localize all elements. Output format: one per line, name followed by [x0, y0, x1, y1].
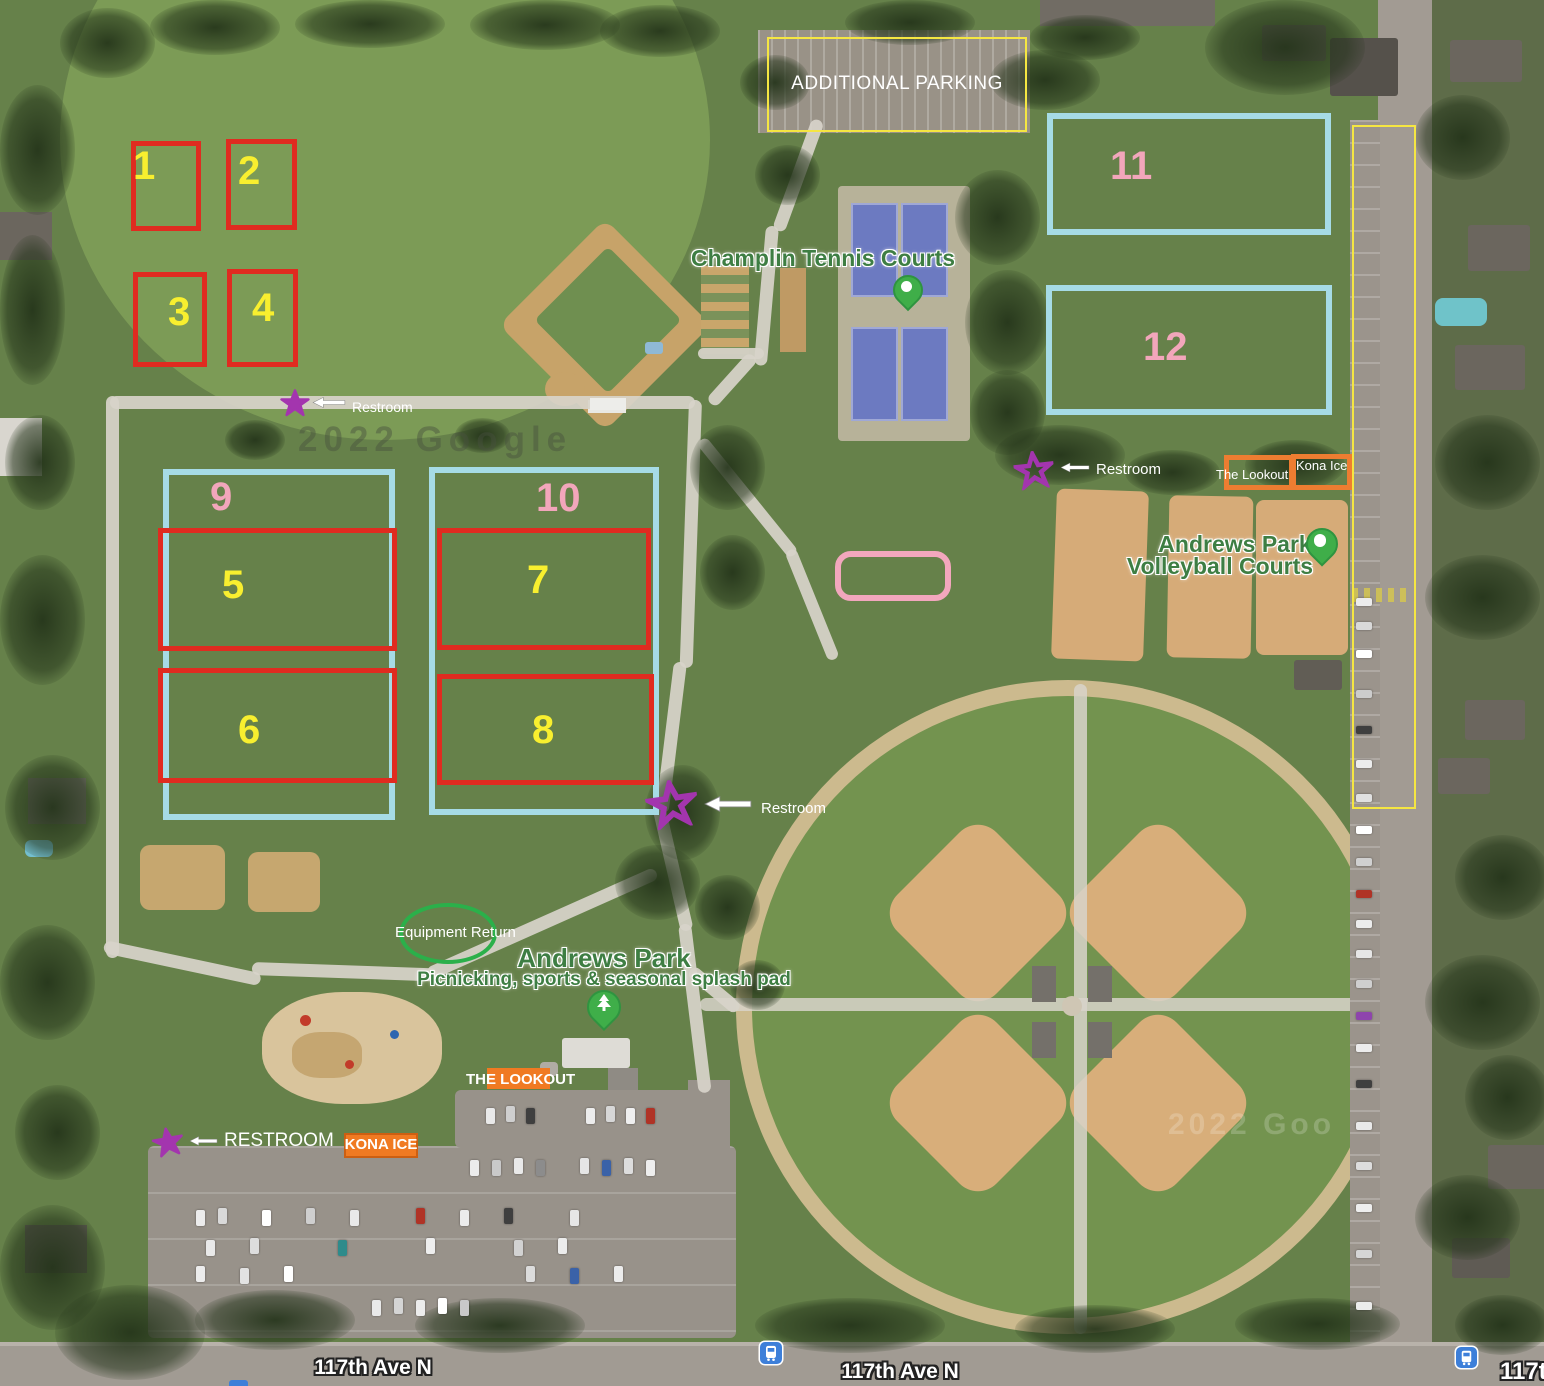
google-watermark: 2022 Goo: [1168, 1108, 1335, 1142]
parked-car: [416, 1300, 425, 1316]
parked-car: [1356, 1162, 1372, 1170]
parked-car: [1356, 1012, 1372, 1020]
parked-car: [196, 1210, 205, 1226]
tree: [695, 875, 760, 940]
restroom-label: RESTROOM: [224, 1131, 334, 1152]
parked-car: [240, 1268, 249, 1284]
parked-car: [586, 1108, 595, 1124]
parked-car: [470, 1160, 479, 1176]
street-parking-box: [1352, 125, 1416, 809]
the-lookout-label: THE LOOKOUT: [466, 1072, 575, 1089]
tree: [60, 8, 155, 78]
tree: [600, 5, 720, 57]
tree: [470, 0, 620, 50]
parked-car: [284, 1266, 293, 1282]
field-box-12: [1046, 285, 1332, 415]
tree: [150, 0, 280, 55]
park-poi-subtitle[interactable]: Picnicking, sports & seasonal splash pad: [417, 969, 791, 991]
parked-car: [1356, 1080, 1372, 1088]
additional-parking-label: ADDITIONAL PARKING: [791, 74, 1003, 95]
parked-car: [438, 1298, 447, 1314]
street-label: 117th Ave N: [841, 1360, 959, 1384]
tree-pin-icon[interactable]: [587, 990, 621, 1024]
tree: [955, 170, 1040, 265]
parked-car: [602, 1160, 611, 1176]
parked-car: [1356, 890, 1372, 898]
parked-car: [626, 1108, 635, 1124]
parked-car: [426, 1238, 435, 1254]
left-arrow-icon: [312, 396, 346, 409]
tree: [1205, 0, 1365, 95]
restroom-label: Restroom: [1096, 462, 1161, 479]
parked-car: [416, 1208, 425, 1224]
parked-car: [614, 1266, 623, 1282]
field-number-9: 9: [210, 477, 232, 517]
restroom-star-icon: [643, 777, 701, 832]
tree: [690, 425, 765, 510]
field-number-10: 10: [536, 478, 581, 518]
parked-car: [606, 1106, 615, 1122]
parked-car: [1356, 920, 1372, 928]
tree: [0, 555, 85, 685]
left-arrow-icon: [189, 1135, 218, 1147]
field-box-2: [226, 139, 297, 230]
restroom-star-icon: [280, 388, 310, 418]
restroom-label: Restroom: [352, 400, 413, 415]
field-box-6: [158, 668, 397, 783]
parked-car: [646, 1160, 655, 1176]
bus-stop-icon[interactable]: [760, 1342, 782, 1364]
left-arrow-icon: [702, 795, 754, 813]
tree: [1415, 95, 1510, 180]
equipment-return-label: Equipment Return: [395, 925, 516, 942]
restroom-star-icon: [1012, 449, 1056, 491]
tree: [1235, 1298, 1400, 1350]
restroom-star-icon: [148, 1123, 187, 1160]
tree: [1455, 1295, 1544, 1355]
bus-glyph: [761, 1343, 781, 1363]
field-box-5: [158, 528, 397, 651]
parked-car: [218, 1208, 227, 1224]
parked-car: [492, 1160, 501, 1176]
pink-marker-box: [835, 551, 951, 601]
tree: [0, 925, 95, 1040]
kona-ice-label: Kona Ice: [1296, 459, 1347, 473]
tree: [965, 270, 1050, 375]
tree: [55, 1285, 205, 1380]
tree: [195, 1290, 355, 1350]
parked-car: [1356, 1122, 1372, 1130]
tree: [5, 755, 100, 860]
parked-car: [460, 1300, 469, 1316]
parked-car: [526, 1266, 535, 1282]
parked-car: [570, 1268, 579, 1284]
parked-car: [504, 1208, 513, 1224]
field-number-5: 5: [222, 565, 244, 605]
field-number-12: 12: [1143, 327, 1188, 367]
tree: [755, 145, 820, 205]
parked-car: [1356, 1250, 1372, 1258]
parked-car: [558, 1238, 567, 1254]
parked-car: [1356, 980, 1372, 988]
parked-car: [372, 1300, 381, 1316]
parked-car: [514, 1158, 523, 1174]
left-arrow-icon: [1060, 461, 1090, 474]
street-label: 117th Ave N: [314, 1356, 432, 1380]
field-number-8: 8: [532, 710, 554, 750]
tree: [755, 1298, 945, 1353]
street-label: 117th: [1500, 1358, 1544, 1386]
parked-car: [350, 1210, 359, 1226]
tree: [1425, 555, 1540, 640]
parked-car: [506, 1106, 515, 1122]
tree: [700, 535, 765, 610]
tree: [0, 235, 65, 385]
kona-ice-label: KONA ICE: [345, 1137, 418, 1154]
parked-car: [196, 1266, 205, 1282]
parked-car: [1356, 950, 1372, 958]
tree: [1415, 1175, 1520, 1260]
field-number-7: 7: [527, 560, 549, 600]
parked-car: [624, 1158, 633, 1174]
tree: [1015, 1305, 1175, 1353]
tennis-courts-poi-label[interactable]: Champlin Tennis Courts: [691, 245, 955, 272]
parked-car: [536, 1160, 545, 1176]
map-pin-icon[interactable]: [1306, 528, 1338, 560]
tree: [1455, 835, 1544, 920]
parked-car: [1356, 1204, 1372, 1212]
parked-car: [486, 1108, 495, 1124]
park-map: 2022 Google 2022 Goo 1 2 3 4 9 10 11 12 …: [0, 0, 1544, 1386]
parked-car: [306, 1208, 315, 1224]
kona-ice-sign: KONA ICE: [344, 1133, 418, 1158]
tree: [5, 415, 75, 510]
volleyball-courts-poi-label[interactable]: Volleyball Courts: [1127, 553, 1313, 580]
parked-car: [394, 1298, 403, 1314]
google-watermark: 2022 Google: [298, 420, 572, 460]
field-number-6: 6: [238, 710, 260, 750]
field-number-4: 4: [252, 288, 274, 328]
tree: [15, 1085, 100, 1180]
parked-car: [262, 1210, 271, 1226]
parked-car: [250, 1238, 259, 1254]
map-pin-icon[interactable]: [893, 275, 923, 305]
tree: [1030, 15, 1140, 60]
parked-car: [646, 1108, 655, 1124]
field-number-11: 11: [1110, 146, 1152, 186]
field-number-1: 1: [133, 146, 155, 186]
tree: [295, 0, 445, 48]
parked-car: [1356, 1302, 1372, 1310]
parked-car: [526, 1108, 535, 1124]
parked-car: [206, 1240, 215, 1256]
bus-stop-icon[interactable]: [1456, 1347, 1477, 1368]
tree: [1435, 415, 1540, 510]
the-lookout-label: The Lookout: [1216, 468, 1288, 482]
parked-car: [1356, 826, 1372, 834]
map-marker-partial: [229, 1380, 248, 1386]
parked-car: [1356, 858, 1372, 866]
parked-car: [514, 1240, 523, 1256]
parked-car: [1356, 1044, 1372, 1052]
parked-car: [580, 1158, 589, 1174]
field-number-2: 2: [238, 151, 260, 191]
additional-parking-box: ADDITIONAL PARKING: [767, 37, 1027, 132]
tree: [1465, 1055, 1544, 1140]
bus-glyph: [1457, 1348, 1476, 1367]
tree: [1425, 955, 1540, 1050]
tree: [615, 845, 700, 920]
tree: [0, 85, 75, 215]
restroom-label: Restroom: [761, 801, 826, 818]
field-box-11: [1047, 113, 1331, 235]
parked-car: [460, 1210, 469, 1226]
field-number-3: 3: [168, 292, 190, 332]
parked-car: [570, 1210, 579, 1226]
parked-car: [338, 1240, 347, 1256]
tree: [225, 420, 285, 460]
